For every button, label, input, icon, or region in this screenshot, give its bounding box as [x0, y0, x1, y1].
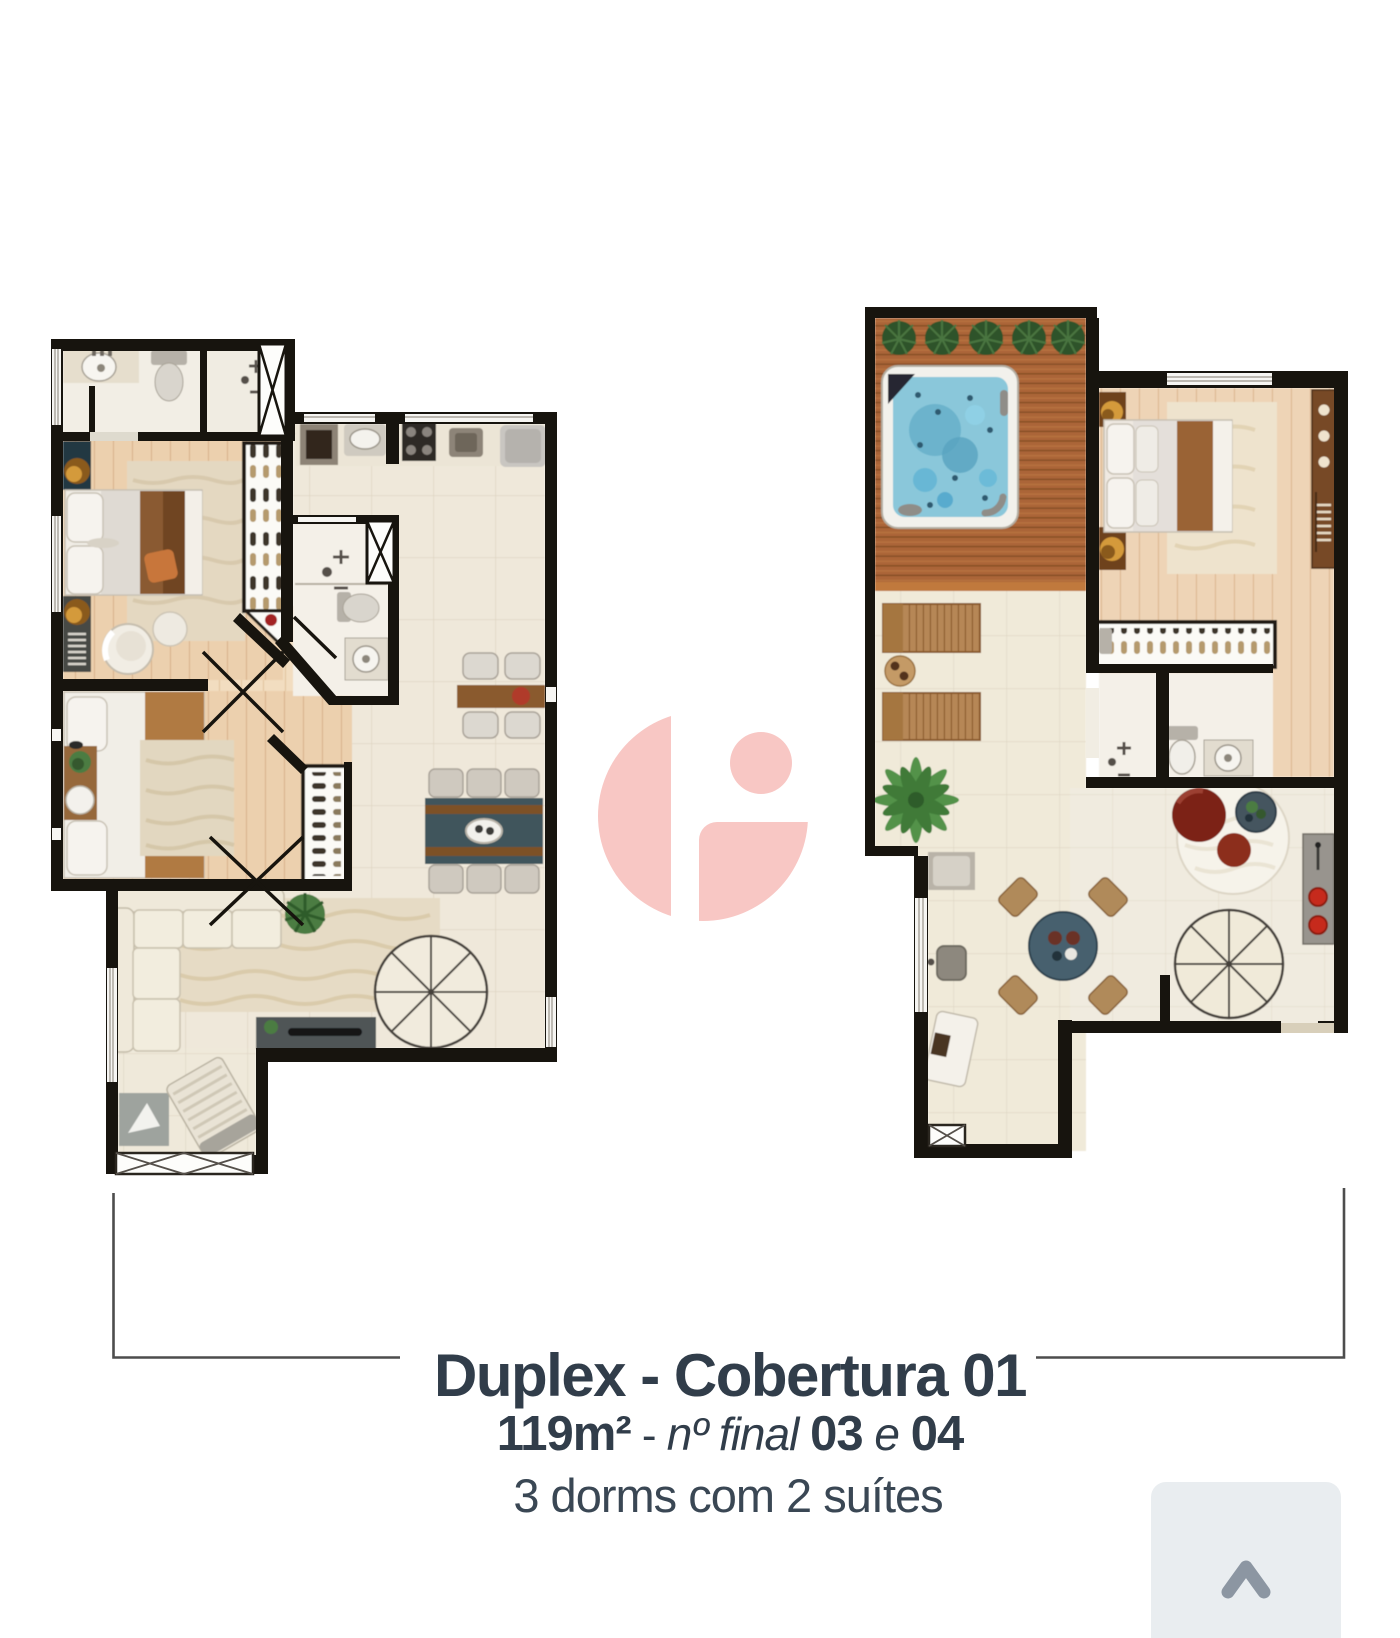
svg-text:119m² - nº final 03 e 04: 119m² - nº final 03 e 04 — [497, 1407, 964, 1461]
svg-text:Duplex - Cobertura 01: Duplex - Cobertura 01 — [434, 1342, 1026, 1409]
svg-text:3 dorms com 2 suítes: 3 dorms com 2 suítes — [513, 1469, 942, 1522]
